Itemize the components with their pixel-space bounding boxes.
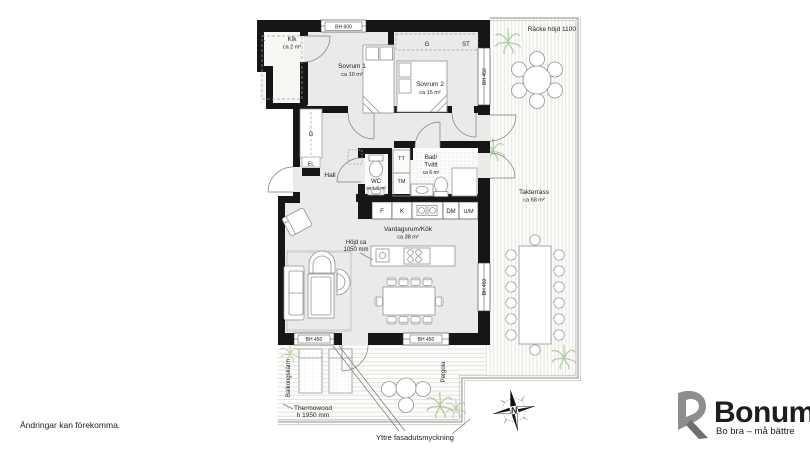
room-area-vardagsrum: ca 38 m² [397, 235, 419, 241]
bonum-logo-text: Bonum [714, 396, 810, 429]
label-racke: Räcke höjd 1100 [528, 26, 577, 33]
room-area-takterrass: ca 68 m² [523, 198, 545, 204]
label-dm: DM [446, 209, 455, 215]
label-thermowood-1: Thermowood [294, 405, 332, 412]
window-label-bh450-bottom-right: BH 450 [418, 337, 435, 343]
label-hojd-2: 1050 mm [343, 247, 368, 253]
kitchen-island [371, 246, 455, 266]
bonum-logo-icon [678, 391, 708, 439]
label-yttre: Yttre fasadutsmyckning [376, 433, 454, 442]
compass-rose: N [490, 386, 539, 435]
label-tt: TT [398, 156, 405, 162]
room-area-bad: ca 6 m² [423, 170, 440, 176]
label-hojd-1: Höjd ca [346, 240, 367, 246]
kitchen-units [358, 202, 478, 219]
bedroom1-bed [363, 45, 394, 113]
window-label-bh600: BH 600 [335, 25, 352, 31]
room-label-klk: Klk [287, 36, 297, 43]
label-balkongskarm: Balkongskärm [286, 359, 292, 397]
bonum-tagline: Bo bra – må bättre [716, 426, 795, 437]
label-k: K [400, 209, 404, 215]
hall-closet [300, 109, 322, 167]
label-tm: TM [398, 179, 406, 185]
label-st: ST [462, 42, 470, 48]
label-el: EL [308, 162, 315, 168]
room-label-wc: WC [371, 179, 382, 185]
window-label-bh450-right-upper: BH 450 [482, 68, 488, 85]
label-f: F [380, 209, 384, 215]
room-label-vardagsrum: Vardagsrum/Kök [384, 226, 433, 233]
label-pergola: Pergola [441, 361, 447, 382]
disclaimer-note: Ändringar kan förekomma. [20, 420, 120, 430]
room-label-takterrass: Takterrass [519, 189, 550, 196]
floor-plan-canvas: BH 600 BH 450 BH 450 BH 450 BH 450 [0, 0, 810, 455]
room-area-sovrum1: ca 10 m² [341, 72, 363, 78]
room-label-bad-1: Bad/ [425, 155, 438, 161]
room-label-sovrum2: Sovrum 2 [416, 81, 444, 88]
window-label-bh450-bottom-left: BH 450 [306, 337, 323, 343]
room-area-sovrum2: ca 15 m² [419, 90, 441, 96]
label-closet-g: G [309, 132, 314, 138]
room-area-klk: ca 2 m² [283, 45, 302, 51]
label-um: U/M [463, 209, 474, 215]
label-thermowood-2: h 1950 mm [297, 412, 330, 419]
window-label-bh450-right-lower: BH 450 [482, 278, 488, 295]
room-label-hall: Hall [324, 172, 336, 179]
bonum-logo: Bonum Bo bra – må bättre [678, 391, 810, 439]
room-label-sovrum1: Sovrum 1 [338, 63, 366, 70]
label-wardrobe-g: G [425, 42, 430, 48]
room-area-wc: ca 1,5 m² [366, 186, 386, 192]
room-label-bad-2: Tvätt [424, 163, 438, 169]
